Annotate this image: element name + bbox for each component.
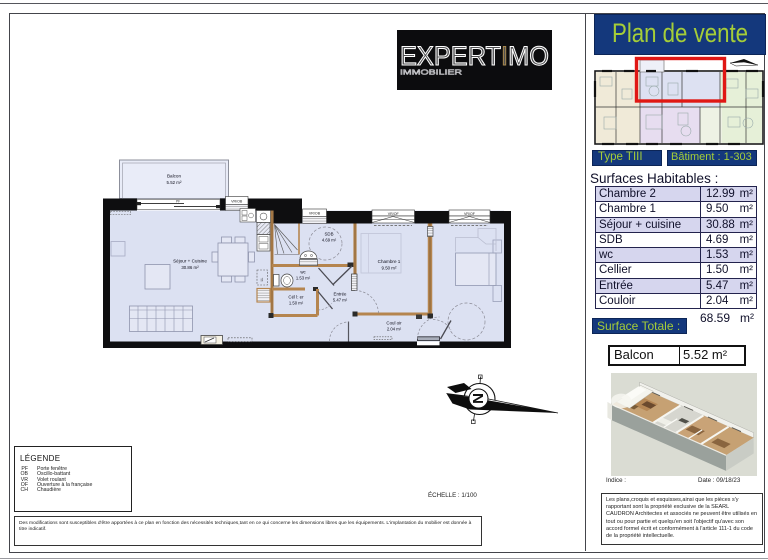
svg-text:Séjour + Cuisine: Séjour + Cuisine: [173, 259, 207, 264]
svg-text:VR/OB: VR/OB: [309, 212, 321, 216]
svg-text:LL: LL: [260, 278, 264, 282]
svg-text:5.52 m²: 5.52 m²: [167, 180, 182, 185]
svg-text:Cél l: er: Cél l: er: [288, 295, 304, 300]
svg-text:Chambre 1: Chambre 1: [378, 259, 401, 264]
svg-text:VR/OF: VR/OF: [388, 212, 400, 216]
svg-text:1.53 m²: 1.53 m²: [296, 276, 311, 281]
svg-text:VR/OF: VR/OF: [464, 212, 476, 216]
svg-text:Coul oir: Coul oir: [386, 321, 402, 326]
svg-text:1.50 m²: 1.50 m²: [289, 301, 304, 306]
svg-text:30.86 m²: 30.86 m²: [181, 265, 199, 270]
svg-text:VR/OB: VR/OB: [231, 199, 243, 203]
svg-text:PF: PF: [176, 200, 180, 204]
svg-text:9.50 m²: 9.50 m²: [382, 266, 397, 271]
svg-text:N: N: [470, 393, 487, 404]
svg-text:Balcon: Balcon: [167, 174, 181, 179]
svg-text:2.04 m²: 2.04 m²: [387, 327, 402, 332]
svg-text:4.69 m²: 4.69 m²: [322, 238, 337, 243]
svg-text:SDB: SDB: [324, 232, 333, 237]
svg-text:5.47 m²: 5.47 m²: [333, 298, 348, 303]
svg-text:Entrée: Entrée: [334, 292, 347, 297]
svg-text:wc: wc: [300, 270, 306, 275]
